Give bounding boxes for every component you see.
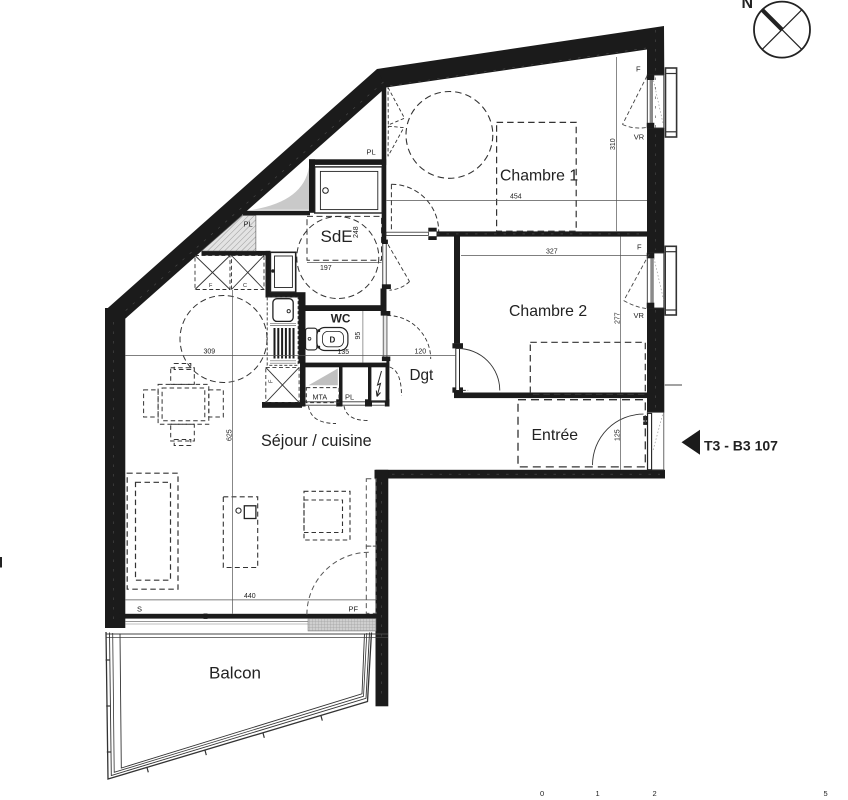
svg-text:PL: PL bbox=[345, 393, 354, 402]
svg-text:PL: PL bbox=[367, 148, 376, 157]
svg-text:VR: VR bbox=[634, 133, 645, 142]
svg-text:1: 1 bbox=[596, 789, 600, 798]
svg-text:0: 0 bbox=[540, 789, 544, 798]
svg-text:T3 - B3 107: T3 - B3 107 bbox=[704, 438, 778, 454]
svg-text:Chambre 2: Chambre 2 bbox=[509, 303, 587, 320]
svg-text:440: 440 bbox=[244, 593, 256, 600]
svg-text:454: 454 bbox=[510, 194, 522, 201]
svg-text:WC: WC bbox=[331, 311, 351, 325]
svg-text:625: 625 bbox=[227, 429, 234, 441]
svg-text:197: 197 bbox=[320, 265, 332, 272]
svg-text:2: 2 bbox=[653, 789, 657, 798]
svg-text:C: C bbox=[243, 283, 247, 289]
svg-text:277: 277 bbox=[615, 312, 622, 324]
svg-text:Chambre 1: Chambre 1 bbox=[500, 168, 578, 185]
svg-text:Balcon: Balcon bbox=[209, 664, 261, 683]
svg-text:PF: PF bbox=[349, 605, 359, 614]
svg-text:Entrée: Entrée bbox=[532, 427, 579, 444]
svg-text:327: 327 bbox=[546, 249, 558, 256]
svg-text:248: 248 bbox=[353, 226, 360, 238]
svg-text:Séjour / cuisine: Séjour / cuisine bbox=[261, 432, 372, 450]
svg-text:120: 120 bbox=[415, 349, 427, 356]
svg-text:SdE: SdE bbox=[321, 227, 353, 246]
svg-text:F: F bbox=[636, 65, 641, 74]
svg-text:5: 5 bbox=[824, 789, 828, 798]
svg-text:310: 310 bbox=[610, 138, 617, 150]
svg-text:PL: PL bbox=[244, 220, 253, 229]
svg-text:135: 135 bbox=[338, 349, 350, 356]
svg-text:125: 125 bbox=[615, 429, 622, 441]
svg-text:309: 309 bbox=[204, 349, 216, 356]
svg-text:VR: VR bbox=[634, 311, 645, 320]
svg-text:Dgt: Dgt bbox=[410, 367, 435, 384]
svg-text:95: 95 bbox=[355, 332, 362, 340]
svg-text:MTA: MTA bbox=[313, 393, 328, 402]
svg-text:F: F bbox=[637, 243, 642, 252]
svg-text:N: N bbox=[742, 0, 754, 12]
svg-text:D: D bbox=[330, 336, 336, 345]
svg-text:S: S bbox=[137, 605, 142, 614]
